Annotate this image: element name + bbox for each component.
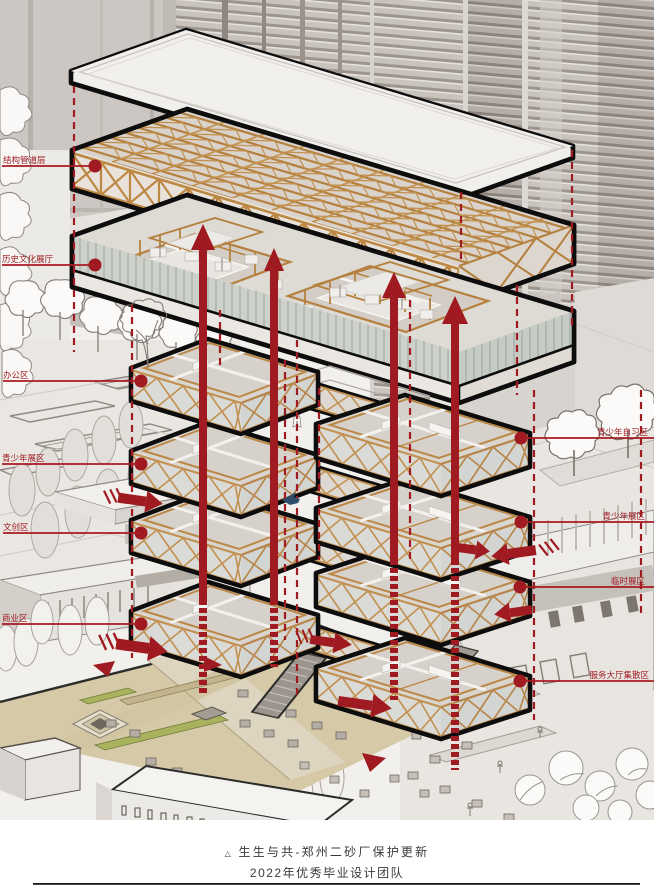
svg-text:办公区: 办公区 [3, 370, 29, 380]
svg-text:△ 生生与共-郑州二砂厂保护更新: △ 生生与共-郑州二砂厂保护更新 [225, 844, 430, 859]
svg-text:文创区: 文创区 [3, 522, 29, 532]
svg-text:临时展区: 临时展区 [611, 576, 646, 586]
svg-text:历史文化展厅: 历史文化展厅 [2, 254, 54, 264]
svg-text:商业区: 商业区 [2, 613, 28, 623]
svg-text:青少年展区: 青少年展区 [602, 511, 645, 521]
svg-text:青少年展区: 青少年展区 [2, 453, 45, 463]
svg-text:2022年优秀毕业设计团队: 2022年优秀毕业设计团队 [250, 865, 404, 880]
svg-text:结构管道层: 结构管道层 [3, 155, 46, 165]
svg-text:青少年自习区: 青少年自习区 [597, 427, 649, 437]
svg-text:服务大厅集散区: 服务大厅集散区 [589, 670, 649, 680]
